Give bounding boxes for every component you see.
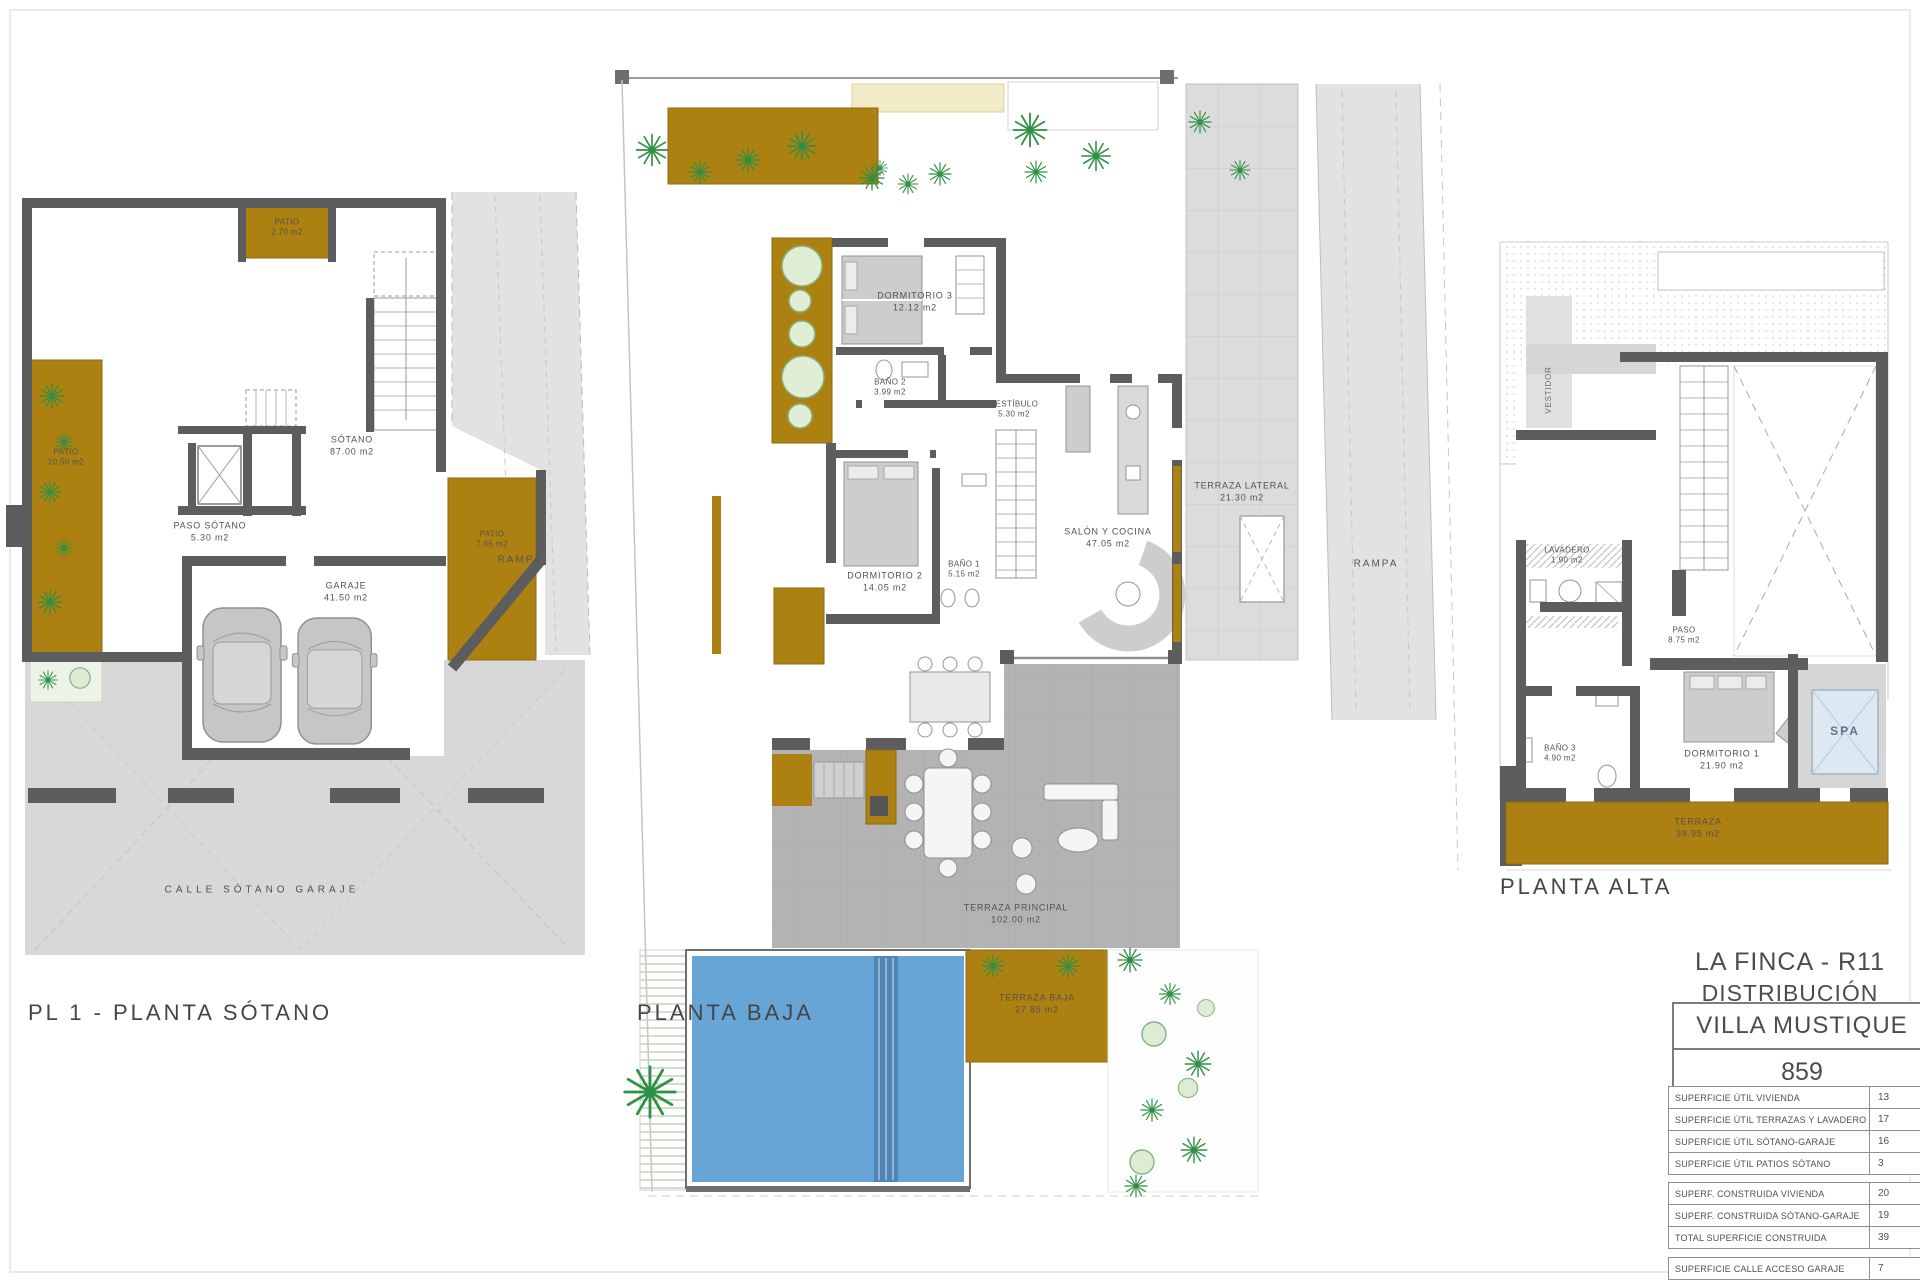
table-row: SUPERF. CONSTRUIDA SÓTANO-GARAJE 19 [1669,1204,1920,1226]
patio-right [448,478,536,660]
table-row: SUPERFICIE CALLE ACCESO GARAJE 7 [1669,1258,1920,1279]
project-title: LA FINCA - R11 [1650,948,1920,977]
room-label-patio-top: PATIO 2.70 m2 [271,218,303,239]
table-row: SUPERFICIE ÚTIL SÓTANO-GARAJE 16 [1669,1130,1920,1152]
room-label-vestidor: VESTIDOR [1544,366,1554,413]
room-label-terraza-lateral: TERRAZA LATERAL 21.30 m2 [1194,480,1289,503]
table-row: SUPERFICIE ÚTIL TERRAZAS Y LAVADERO 17 [1669,1108,1920,1130]
car-1 [197,608,287,742]
room-label-bano2: BAÑO 2 3.99 m2 [874,378,906,399]
street-label: CALLE SÓTANO GARAJE [165,884,360,897]
ramp-label-sotano: RAMPA [498,554,543,567]
ramp-baja [1316,84,1436,720]
room-label-dormitorio1: DORMITORIO 1 21.90 m2 [1684,748,1759,771]
patio-left [30,360,102,656]
room-label-paso: PASO 8.75 m2 [1668,626,1700,647]
room-label-garaje: GARAJE 41.50 m2 [324,580,368,603]
table-row: SUPERF. CONSTRUIDA VIVIENDA 20 [1669,1183,1920,1204]
table-superficie-calle: SUPERFICIE CALLE ACCESO GARAJE 7 [1668,1257,1920,1280]
plan-sheet: PATIO 2.70 m2 SÓTANO 87.00 m2 PASO SÓTAN… [0,0,1920,1280]
room-label-spa: SPA [1830,724,1860,740]
table-superficie-util: SUPERFICIE ÚTIL VIVIENDA 13 SUPERFICIE Ú… [1668,1086,1920,1175]
room-label-vestibulo: VESTÍBULO 5.30 m2 [990,400,1039,421]
caption-planta-sotano: PL 1 - PLANTA SÓTANO [28,1000,332,1026]
room-label-bano1: BAÑO 1 5.15 m2 [948,560,980,581]
room-label-bano3: BAÑO 3 4.90 m2 [1544,744,1576,765]
room-label-sotano: SÓTANO 87.00 m2 [330,434,374,457]
room-label-paso-sotano: PASO SÓTANO 5.30 m2 [174,520,247,543]
caption-planta-baja: PLANTA BAJA [637,1000,814,1026]
room-label-terraza-baja: TERRAZA BAJA 27.85 m2 [999,992,1075,1015]
room-label-terraza-principal: TERRAZA PRINCIPAL 102.00 m2 [964,902,1068,925]
floorplan-drawing [0,0,1920,1280]
villa-name-box: VILLA MUSTIQUE [1672,1002,1920,1050]
room-label-terraza-alta: TERRAZA 39.95 m2 [1674,816,1722,839]
plan-baja [615,70,1458,1197]
car-2 [292,618,377,744]
room-label-patio-right: PATIO 7.65 m2 [476,530,508,551]
caption-planta-alta: PLANTA ALTA [1500,874,1672,900]
planter-box [30,656,102,702]
room-label-lavadero: LAVADERO 1.90 m2 [1544,546,1590,567]
room-label-dormitorio2: DORMITORIO 2 14.05 m2 [847,570,922,593]
table-row: SUPERFICIE ÚTIL VIVIENDA 13 [1669,1087,1920,1108]
table-row: TOTAL SUPERFICIE CONSTRUIDA 39 [1669,1226,1920,1248]
table-superficie-construida: SUPERF. CONSTRUIDA VIVIENDA 20 SUPERF. C… [1668,1182,1920,1249]
room-label-dormitorio3: DORMITORIO 3 12.12 m2 [877,290,952,313]
room-label-patio-left: PATIO 10.50 m2 [48,448,85,469]
room-label-salon: SALÓN Y COCINA 47.05 m2 [1064,526,1151,549]
table-row: SUPERFICIE ÚTIL PATIOS SÓTANO 3 [1669,1152,1920,1174]
plan-sotano [6,192,590,955]
ramp-label-baja: RAMPA [1354,558,1399,571]
